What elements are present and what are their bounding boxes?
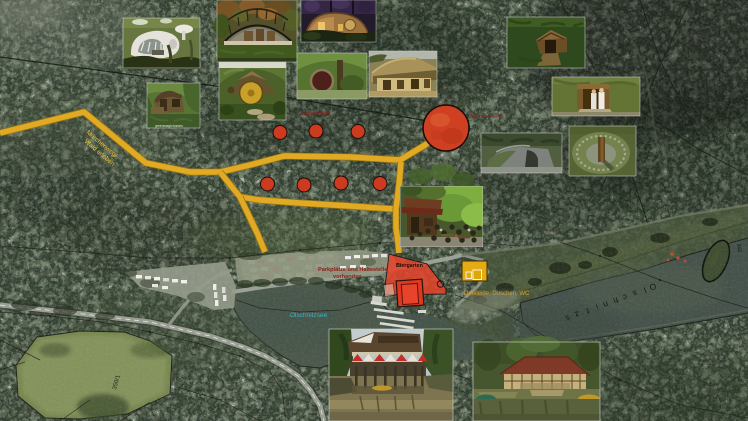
svg-text:Olschnitzsee: Olschnitzsee [290, 312, 328, 319]
svg-text:Parkplätze und Haltestelle: Parkplätze und Haltestelle [318, 267, 387, 273]
svg-text:greenmagichomes: greenmagichomes [155, 124, 183, 128]
svg-text:Wohnbereich: Wohnbereich [301, 111, 331, 117]
svg-text:Saunabereich: Saunabereich [470, 114, 501, 120]
svg-text:Biergarten: Biergarten [396, 263, 423, 269]
svg-text:vorhanden: vorhanden [333, 274, 362, 280]
